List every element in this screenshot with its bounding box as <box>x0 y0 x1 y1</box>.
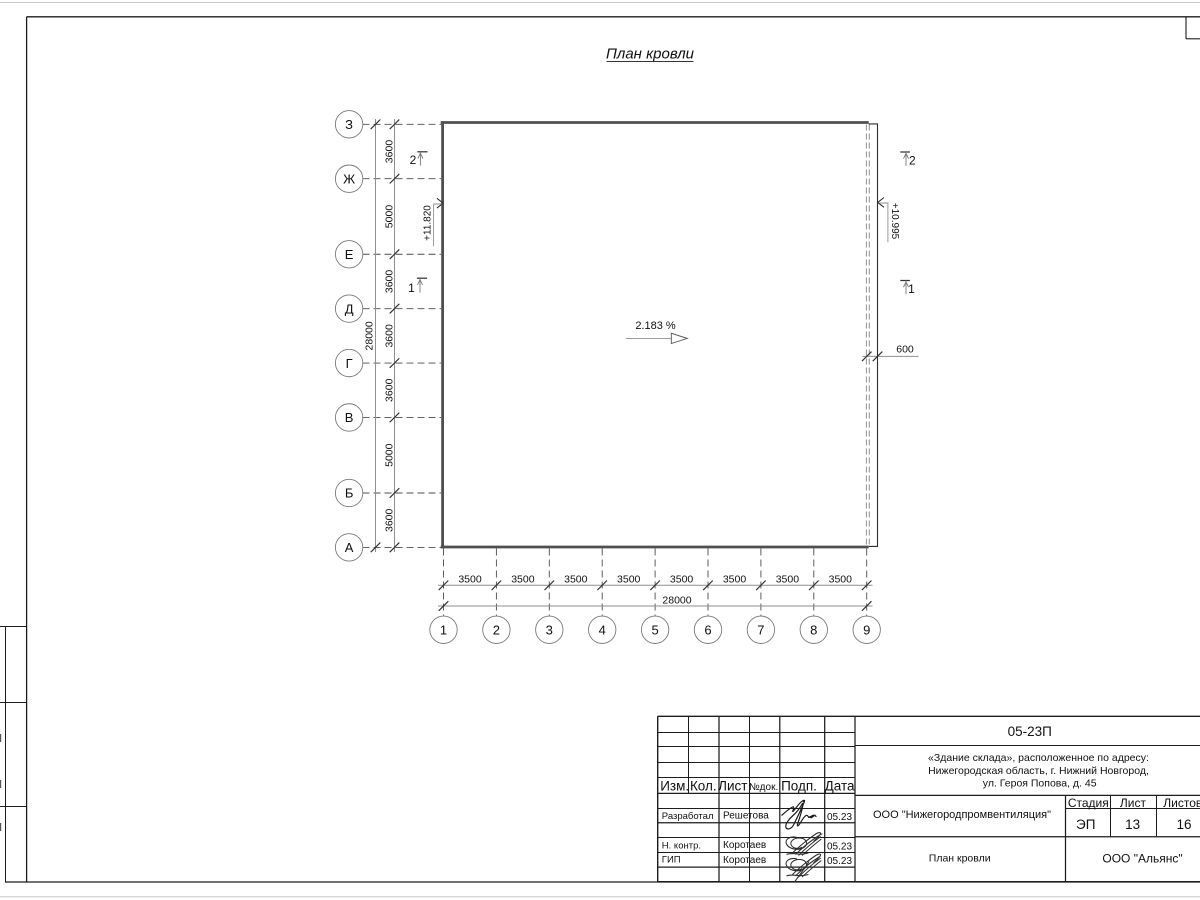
svg-text:ГИП: ГИП <box>662 855 681 866</box>
svg-text:2: 2 <box>909 154 916 168</box>
svg-text:3600: 3600 <box>384 508 396 532</box>
svg-text:3600: 3600 <box>384 324 396 348</box>
svg-text:3600: 3600 <box>384 140 396 164</box>
svg-text:3500: 3500 <box>670 574 694 586</box>
svg-text:Коротаев: Коротаев <box>723 855 766 866</box>
svg-text:Подп.: Подп. <box>781 778 817 793</box>
svg-text:8: 8 <box>810 623 817 638</box>
svg-text:ЭП: ЭП <box>1076 817 1095 832</box>
svg-text:Коротаев: Коротаев <box>723 840 766 851</box>
svg-text:1: 1 <box>408 281 415 295</box>
svg-text:1: 1 <box>440 623 447 638</box>
svg-text:05.23: 05.23 <box>827 856 852 867</box>
svg-text:«Здание склада», расположенное: «Здание склада», расположенное по адресу… <box>928 752 1149 764</box>
svg-text:Листов: Листов <box>1163 796 1200 810</box>
svg-text:3500: 3500 <box>617 574 641 586</box>
svg-text:Д: Д <box>345 301 354 316</box>
svg-text:1: 1 <box>908 282 915 296</box>
svg-text:2.183 %: 2.183 % <box>635 320 676 332</box>
svg-text:Лист: Лист <box>718 778 747 793</box>
svg-text:Н. контр.: Н. контр. <box>662 841 701 852</box>
svg-text:+10.995: +10.995 <box>889 203 900 240</box>
svg-text:600: 600 <box>896 344 914 356</box>
svg-text:Г: Г <box>346 356 353 371</box>
svg-text:Нижегородская область, г. Нижн: Нижегородская область, г. Нижний Новгоро… <box>928 765 1149 777</box>
svg-text:3500: 3500 <box>511 574 535 586</box>
svg-text:№док.: №док. <box>749 782 778 793</box>
svg-text:28000: 28000 <box>364 321 376 350</box>
svg-text:3500: 3500 <box>776 574 800 586</box>
svg-text:7: 7 <box>757 623 764 638</box>
svg-text:13: 13 <box>1125 817 1140 832</box>
svg-text:3: 3 <box>546 623 553 638</box>
svg-text:Кол.: Кол. <box>690 778 717 793</box>
svg-text:5000: 5000 <box>384 205 396 229</box>
svg-text:5000: 5000 <box>384 443 396 467</box>
svg-text:05.23: 05.23 <box>827 812 852 823</box>
svg-text:2: 2 <box>493 623 500 638</box>
svg-text:Дата: Дата <box>825 778 855 793</box>
svg-text:5: 5 <box>651 623 658 638</box>
svg-text:План кровли: План кровли <box>606 46 695 63</box>
svg-text:3500: 3500 <box>458 574 482 586</box>
svg-text:05.23: 05.23 <box>827 842 852 853</box>
svg-text:ООО "Альянс": ООО "Альянс" <box>1102 852 1182 866</box>
svg-text:З: З <box>345 117 353 132</box>
svg-text:16: 16 <box>1176 817 1191 832</box>
svg-text:Стадия: Стадия <box>1068 796 1109 810</box>
svg-text:3600: 3600 <box>384 378 396 402</box>
svg-text:9: 9 <box>863 623 870 638</box>
svg-text:3600: 3600 <box>384 270 396 294</box>
svg-text:План кровли: План кровли <box>929 852 991 864</box>
svg-text:Е: Е <box>345 247 354 262</box>
svg-text:3500: 3500 <box>723 574 747 586</box>
svg-text:Разработал: Разработал <box>662 811 714 822</box>
svg-text:28000: 28000 <box>662 594 691 606</box>
svg-text:4: 4 <box>599 623 606 638</box>
svg-text:Б: Б <box>345 486 354 501</box>
svg-text:Решетова: Решетова <box>723 811 769 822</box>
svg-text:Лист: Лист <box>1120 796 1147 810</box>
svg-text:Изм.: Изм. <box>660 778 689 793</box>
svg-text:ул. Героя Попова, д. 45: ул. Героя Попова, д. 45 <box>983 778 1097 790</box>
svg-text:А: А <box>345 540 354 555</box>
svg-text:+11.820: +11.820 <box>423 205 434 241</box>
svg-text:Ж: Ж <box>343 171 355 186</box>
svg-text:3500: 3500 <box>829 574 853 586</box>
svg-text:3500: 3500 <box>564 574 588 586</box>
svg-text:05-23П: 05-23П <box>1008 724 1052 739</box>
svg-text:2: 2 <box>410 153 417 167</box>
svg-text:6: 6 <box>704 623 711 638</box>
svg-text:ООО "Нижегородпромвентиляция": ООО "Нижегородпромвентиляция" <box>873 809 1051 821</box>
svg-text:В: В <box>345 410 354 425</box>
